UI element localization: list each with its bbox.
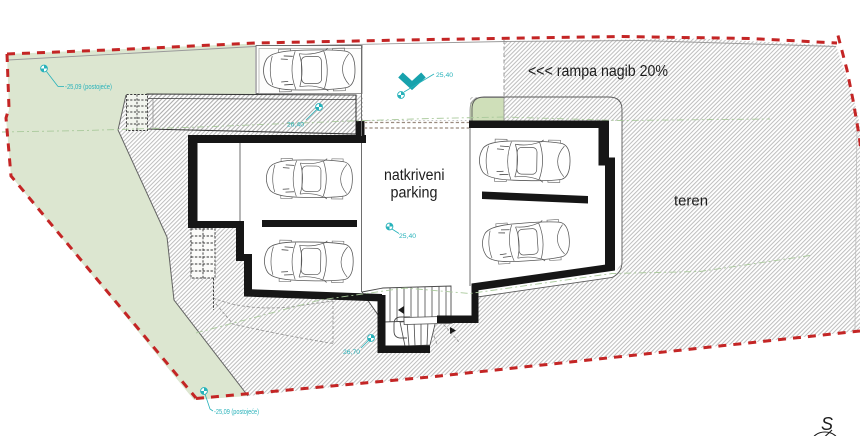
svg-text:parking: parking	[391, 185, 438, 202]
svg-text:-25,09 (postojeće): -25,09 (postojeće)	[65, 82, 112, 91]
svg-text:natkriveni: natkriveni	[384, 167, 445, 184]
svg-text:<<< rampa nagib 20%: <<< rampa nagib 20%	[528, 63, 668, 80]
svg-text:-25,09 (postojeće): -25,09 (postojeće)	[214, 407, 259, 416]
svg-text:25,40: 25,40	[399, 233, 416, 240]
svg-text:teren: teren	[674, 193, 708, 210]
svg-text:26,70: 26,70	[343, 349, 360, 356]
svg-text:26,40: 26,40	[287, 122, 304, 129]
svg-text:25,40: 25,40	[436, 72, 453, 79]
